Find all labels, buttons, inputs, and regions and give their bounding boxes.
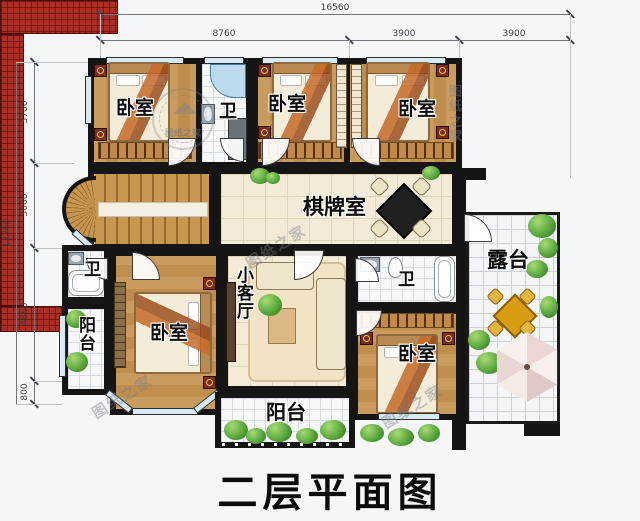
label-bedroom-bottom-left: 卧室 — [150, 324, 188, 343]
label-bedroom-top-right: 卧室 — [398, 100, 436, 119]
dim-ext — [34, 381, 62, 382]
terrace-roof-right — [0, 34, 24, 306]
dim-left-seg1-label: 3700 — [20, 90, 30, 134]
balcony-railing — [222, 443, 348, 446]
nightstand — [203, 376, 216, 389]
plant — [266, 172, 280, 184]
dim-ext — [16, 62, 88, 63]
dim-top-seg3-label: 3900 — [484, 29, 544, 39]
dim-left-total-line — [16, 62, 17, 404]
label-small-living: 小客厅 — [234, 266, 251, 320]
nightstand — [442, 332, 455, 345]
dim-ext — [459, 40, 460, 58]
nightstand — [94, 64, 107, 77]
window — [59, 315, 66, 377]
plant — [422, 166, 440, 180]
pier — [524, 424, 560, 436]
plant — [258, 294, 282, 316]
plant — [66, 352, 88, 372]
dim-left-seg3-label: 4860 — [20, 292, 30, 336]
wardrobe — [336, 64, 347, 148]
dim-top-seg1-label: 8760 — [194, 29, 254, 39]
plant — [360, 424, 384, 442]
sofa — [316, 278, 346, 370]
label-bedroom-top-left: 卧室 — [116, 99, 154, 118]
page-title: 二层平面图 — [150, 460, 510, 518]
dim-left-seg4-label: 800 — [20, 370, 30, 414]
dim-top-seg2-label: 3900 — [374, 29, 434, 39]
plant — [540, 296, 558, 318]
watermark-text: 图纸之家 — [444, 84, 463, 144]
label-game-room: 棋牌室 — [303, 197, 366, 218]
sink — [68, 252, 84, 265]
plant — [266, 422, 292, 442]
staircase-landing — [98, 202, 208, 217]
dim-ext — [570, 14, 571, 178]
plant — [538, 238, 558, 258]
label-bath-left: 卫 — [84, 262, 101, 279]
window — [132, 408, 198, 415]
pier — [452, 168, 486, 180]
wardrobe — [351, 64, 362, 148]
nightstand — [203, 277, 216, 290]
dim-top-seg-line — [100, 40, 570, 41]
label-bedroom-bottom-right: 卧室 — [398, 345, 436, 364]
label-bath-right: 卫 — [398, 272, 415, 289]
dim-left-seg2-label: 3000 — [20, 183, 30, 227]
label-bath-top: 卫 — [219, 103, 237, 121]
bathtub — [434, 256, 455, 302]
dim-ext — [34, 163, 74, 164]
window — [85, 76, 92, 124]
plant — [528, 214, 556, 238]
wardrobe — [114, 282, 126, 368]
dim-ext — [349, 40, 350, 58]
dim-top-total-line — [100, 14, 570, 15]
floor-plan-page: { "title": "二层平面图", "watermark": "图纸之家",… — [0, 0, 640, 521]
label-balcony-left: 阳台 — [76, 316, 93, 352]
plant — [320, 420, 346, 440]
label-bedroom-top-middle: 卧室 — [268, 95, 306, 114]
plant — [468, 330, 490, 350]
plant — [224, 420, 248, 440]
watermark-stamp: 图纸之家 — [152, 88, 214, 150]
house-icon — [173, 102, 197, 114]
nightstand — [258, 64, 271, 77]
stamp-text: 图纸之家 — [154, 126, 212, 139]
label-terrace: 露台 — [487, 250, 529, 271]
nightstand — [436, 64, 449, 77]
label-balcony-bottom: 阳台 — [266, 402, 306, 422]
plant — [526, 260, 548, 278]
dim-ext — [34, 248, 62, 249]
dim-left-total-label: 12360 — [2, 211, 12, 255]
dim-left-seg-line — [34, 62, 35, 404]
dim-ext — [16, 404, 62, 405]
window — [204, 57, 244, 64]
nightstand — [94, 128, 107, 141]
plant — [418, 424, 440, 442]
plant — [246, 428, 266, 444]
dim-top-total-label: 16560 — [305, 3, 365, 13]
plant — [296, 428, 318, 444]
dim-ext — [100, 14, 101, 58]
